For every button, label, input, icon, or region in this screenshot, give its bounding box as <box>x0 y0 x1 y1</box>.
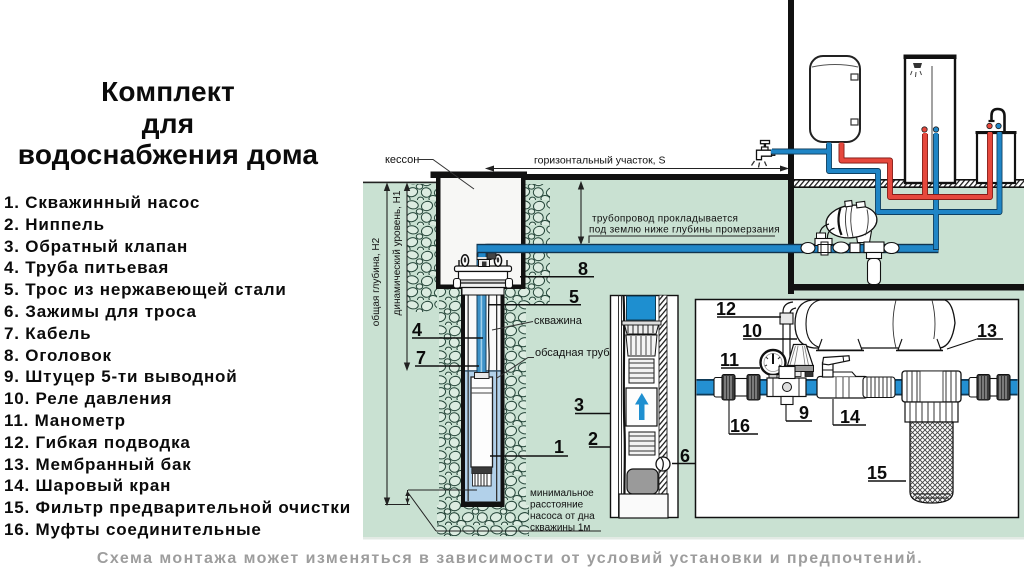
svg-text:14: 14 <box>840 407 860 427</box>
svg-text:9: 9 <box>799 403 809 423</box>
svg-text:динамический уровень, Н1: динамический уровень, Н1 <box>392 190 403 315</box>
svg-text:кессон: кессон <box>385 154 419 166</box>
svg-text:4: 4 <box>412 320 422 340</box>
svg-text:15: 15 <box>867 463 887 483</box>
svg-text:3: 3 <box>574 395 584 415</box>
svg-text:обсадная труба: обсадная труба <box>535 347 616 359</box>
svg-text:общая глубина, Н2: общая глубина, Н2 <box>370 237 382 326</box>
svg-text:минимальное: минимальное <box>530 488 594 499</box>
svg-text:трубопровод прокладывается: трубопровод прокладывается <box>592 213 738 225</box>
svg-text:13: 13 <box>977 321 997 341</box>
svg-text:10: 10 <box>742 321 762 341</box>
svg-text:1: 1 <box>554 437 564 457</box>
svg-text:расстояние: расстояние <box>530 500 584 511</box>
svg-text:16: 16 <box>730 416 750 436</box>
svg-text:12: 12 <box>716 299 736 319</box>
svg-text:под землю ниже глубины промерз: под землю ниже глубины промерзания <box>589 224 780 236</box>
svg-text:скважины 1м: скважины 1м <box>530 523 590 534</box>
svg-text:2: 2 <box>588 429 598 449</box>
svg-text:скважина: скважина <box>534 315 583 327</box>
svg-text:насоса от дна: насоса от дна <box>530 511 595 522</box>
svg-text:горизонтальный участок, S: горизонтальный участок, S <box>534 155 666 167</box>
svg-text:11: 11 <box>720 350 739 370</box>
svg-text:7: 7 <box>416 348 426 368</box>
